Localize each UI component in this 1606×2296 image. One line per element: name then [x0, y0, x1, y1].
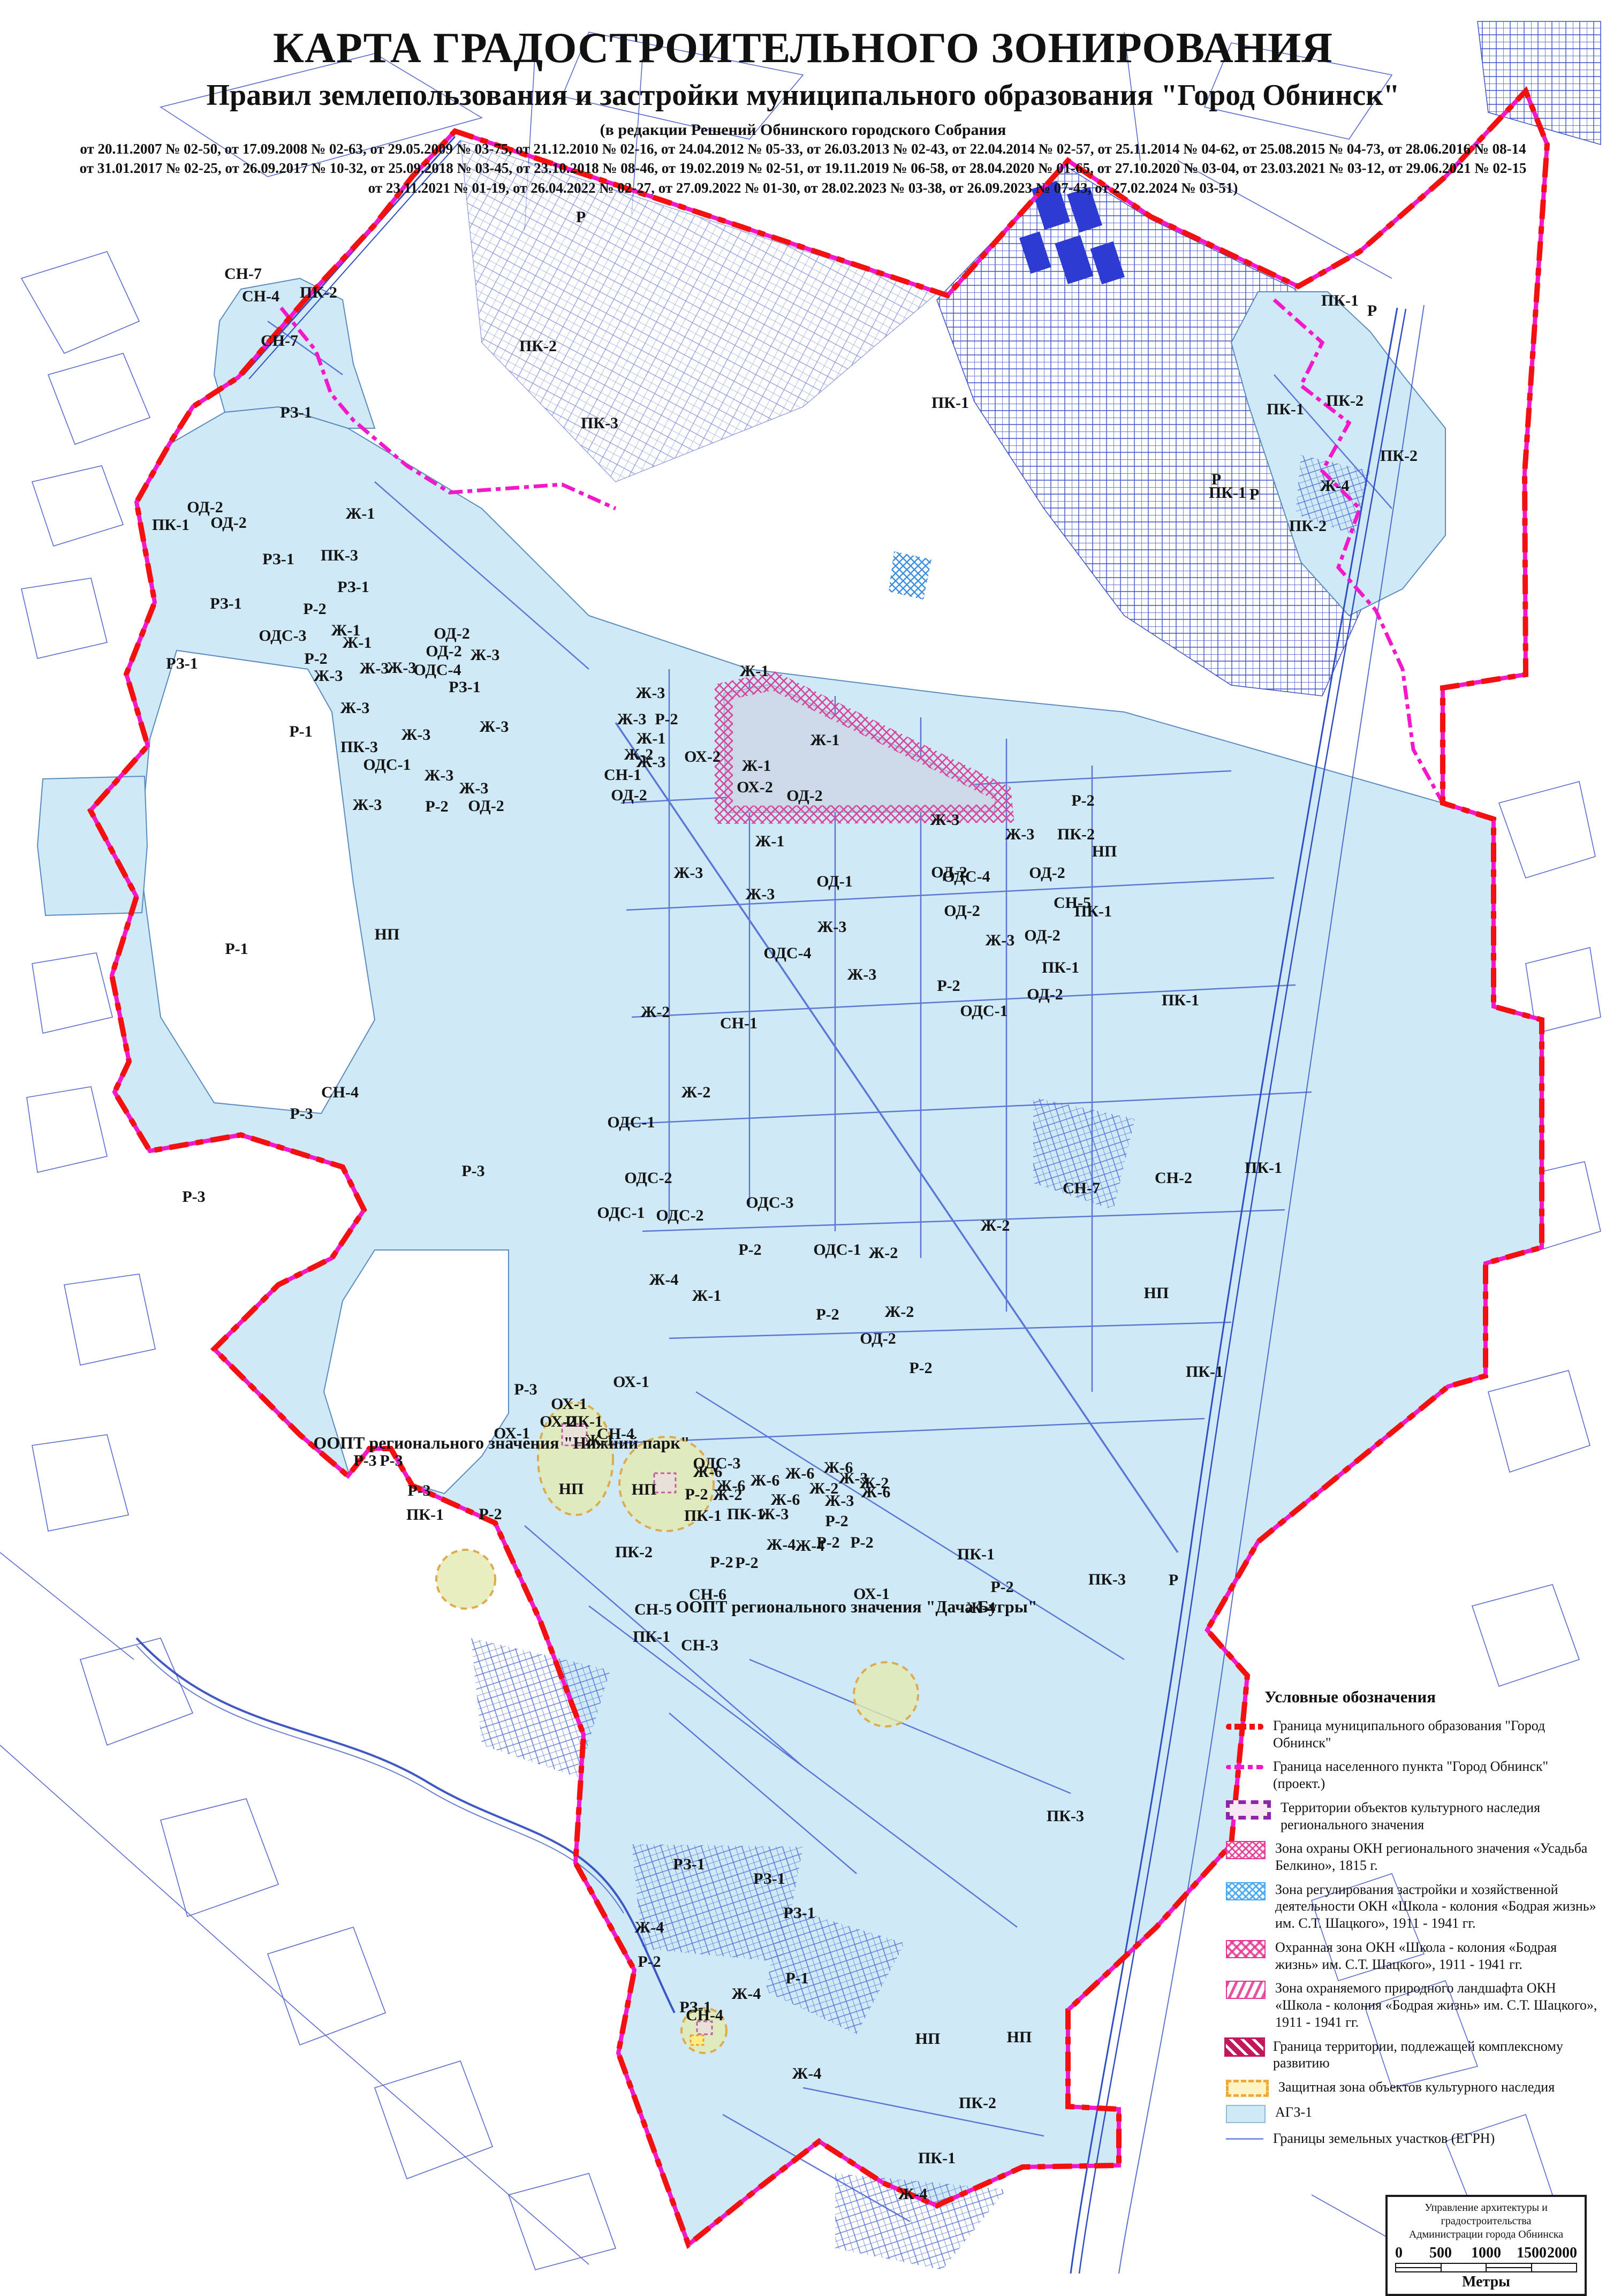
- zone-label: СН-7: [1063, 1179, 1100, 1197]
- zone-label: СН-4: [321, 1083, 359, 1101]
- zone-label: ПК-3: [581, 414, 618, 432]
- zone-label: Р: [576, 208, 586, 226]
- zone-label: Р-1: [225, 940, 248, 958]
- legend-item: Защитная зона объектов культурного насле…: [1226, 2079, 1601, 2097]
- zone-label: ОД-2: [468, 797, 504, 815]
- page-title: КАРТА ГРАДОСТРОИТЕЛЬНОГО ЗОНИРОВАНИЯ: [0, 26, 1606, 71]
- zone-label: ОХ-1: [551, 1395, 587, 1413]
- zone-label: Ж-3: [360, 660, 389, 677]
- zone-label: Ж-4: [796, 1537, 825, 1555]
- zone-label: ПК-2: [1057, 825, 1095, 843]
- zone-label: ОД-2: [860, 1330, 896, 1347]
- zone-label: ПК-1: [1267, 400, 1304, 418]
- zone-label: Ж-3: [617, 710, 647, 728]
- zone-label: НП: [632, 1481, 657, 1498]
- zone-label: ПК-2: [300, 284, 337, 301]
- zone-label: Ж-4: [767, 1536, 796, 1554]
- legend-item: Зона охраны ОКН регионального значения «…: [1226, 1840, 1601, 1874]
- heritage-swatch: [1226, 1800, 1271, 1820]
- scale-segment: [1487, 2264, 1532, 2271]
- zone-label: Р-2: [655, 710, 678, 728]
- zone-label: ОДС-3: [746, 1194, 793, 1211]
- zone-label: ПК-1: [1245, 1159, 1282, 1177]
- zone-label: РЗ-1: [449, 678, 481, 696]
- zone-label: СН-7: [224, 265, 262, 283]
- zone-label: ПК-3: [321, 547, 358, 564]
- zone-label: Ж-1: [343, 634, 372, 651]
- zone-label: Р-1: [785, 1969, 808, 1987]
- zone-label: Ж-1: [742, 757, 771, 775]
- zone-label: СН-2: [1155, 1169, 1192, 1187]
- zone-label: Ж-3: [847, 966, 877, 983]
- scale-box: Управление архитектуры и градостроительс…: [1385, 2195, 1587, 2296]
- zone-label: Р-3: [380, 1452, 403, 1469]
- scale-units: Метры: [1393, 2274, 1579, 2291]
- zone-label: ОД-2: [1024, 927, 1060, 944]
- landscape-swatch: [1226, 1981, 1266, 1999]
- zone-label: ОД-2: [944, 902, 980, 920]
- zone-label: Ж-3: [636, 684, 665, 702]
- zone-label: НП: [559, 1480, 584, 1498]
- zone-label: Ж-3: [930, 811, 960, 829]
- zone-label: Р-3: [407, 1482, 430, 1499]
- zone-label: ОД-2: [1029, 864, 1065, 882]
- zone-label: РЗ-1: [673, 1855, 705, 1873]
- legend-item-label: АГЗ-1: [1275, 2104, 1312, 2121]
- scale-segment: [1442, 2264, 1487, 2271]
- zone-label: ПК-1: [1074, 903, 1112, 920]
- legend-item-label: Граница территории, подлежащей комплексн…: [1273, 2038, 1601, 2072]
- legend: Условные обозначения Граница муниципальн…: [1226, 1687, 1601, 2154]
- zone-label: Р: [1169, 1571, 1178, 1589]
- zone-label: ООПТ регионального значения "Дача Бугры": [676, 1597, 1037, 1616]
- zone-label: Р-2: [937, 977, 960, 995]
- title-block: КАРТА ГРАДОСТРОИТЕЛЬНОГО ЗОНИРОВАНИЯ Пра…: [0, 26, 1606, 198]
- zone-label: Ж-3: [986, 931, 1015, 949]
- zone-label: РЗ-1: [166, 655, 198, 672]
- legend-rows: Граница муниципального образования "Горо…: [1226, 1717, 1601, 2147]
- scale-ticks: 0500100015002000: [1395, 2245, 1577, 2263]
- zone-label: Ж-1: [346, 505, 375, 522]
- zone-label: Р-2: [1071, 792, 1094, 809]
- scale-tick: 1500: [1517, 2245, 1547, 2262]
- zone-label: ПК-1: [957, 1545, 995, 1563]
- zone-label: ОДС-1: [960, 1002, 1007, 1020]
- zone-label: ОДС-4: [413, 661, 461, 679]
- zone-label: ОД-2: [1027, 986, 1063, 1003]
- page-subtitle: Правил землепользования и застройки муни…: [0, 78, 1606, 112]
- zone-label: СН-1: [720, 1014, 757, 1032]
- zone-label: Р-3: [461, 1162, 484, 1180]
- zone-label: Ж-2: [981, 1217, 1010, 1234]
- zone-label: Ж-4: [649, 1271, 679, 1289]
- zone-label: Ж-1: [692, 1287, 722, 1305]
- edition-line-3: от 23.11.2021 № 01-19, от 26.04.2022 № 0…: [0, 178, 1606, 198]
- zone-label: ПК-1: [1186, 1363, 1223, 1381]
- zone-label: Р: [1367, 302, 1377, 320]
- zone-label: Ж-6: [861, 1483, 891, 1501]
- zone-label: НП: [375, 926, 400, 943]
- zone-label: ПК-1: [1209, 484, 1246, 502]
- zone-label: Р-2: [638, 1953, 661, 1971]
- scale-bar: [1395, 2263, 1577, 2272]
- zone-label: СН-5: [634, 1601, 672, 1618]
- zone-label: РЗ-1: [337, 578, 369, 596]
- legend-item: Охранная зона ОКН «Школа - колония «Бодр…: [1226, 1939, 1601, 1973]
- zone-label: ОДС-4: [942, 868, 990, 885]
- legend-item: Границы земельных участков (ЕГРН): [1226, 2130, 1601, 2147]
- complex-dev-swatch: [1226, 2039, 1263, 2055]
- zone-label: Р-2: [303, 600, 326, 618]
- zone-label: ПК-2: [615, 1543, 653, 1561]
- zone-label: Ж-4: [898, 2185, 928, 2203]
- zone-label: Ж-1: [637, 730, 666, 747]
- zone-label: Ж-2: [713, 1486, 743, 1504]
- legend-item: Граница территории, подлежащей комплексн…: [1226, 2038, 1601, 2072]
- zoning-map-page: { "header": { "title": "КАРТА ГРАДОСТРОИ…: [0, 0, 1606, 2274]
- zone-label: НП: [1092, 843, 1117, 860]
- zone-label: ПК-2: [1289, 517, 1327, 535]
- zone-label: ОДС-3: [259, 627, 306, 645]
- reg-blue-swatch: [1226, 1882, 1266, 1900]
- zone-label: НП: [1144, 1284, 1169, 1302]
- legend-item: Зона регулирования застройки и хозяйстве…: [1226, 1881, 1601, 1932]
- zone-label: РЗ-1: [262, 550, 294, 568]
- zone-label: Ж-1: [755, 832, 785, 850]
- zone-label: Р-3: [514, 1381, 537, 1398]
- zone-label: Ж-1: [740, 662, 769, 680]
- zone-label: Ж-3: [401, 726, 431, 744]
- zone-label: ПК-3: [340, 738, 378, 756]
- legend-item: Граница населенного пункта "Город Обнинс…: [1226, 1758, 1601, 1792]
- zone-label: ПК-1: [1162, 991, 1199, 1009]
- zone-label: Р-2: [816, 1306, 839, 1323]
- zone-label: Ж-3: [314, 667, 343, 685]
- legend-item-label: Зона охраняемого природного ландшафта ОК…: [1275, 1980, 1601, 2030]
- zone-label: Ж-2: [869, 1244, 898, 1262]
- zone-label: ОД-2: [210, 514, 246, 532]
- zone-label: ПК-1: [684, 1507, 722, 1525]
- zone-label: ПК-1: [727, 1505, 764, 1523]
- zone-label: НП: [915, 2030, 941, 2048]
- edition-line-1: от 20.11.2007 № 02-50, от 17.09.2008 № 0…: [0, 139, 1606, 158]
- zone-label: Р-2: [909, 1359, 932, 1377]
- scale-tick: 2000: [1547, 2245, 1577, 2262]
- zone-label: ПК-3: [1088, 1571, 1126, 1588]
- zone-label: ОДС-4: [763, 944, 811, 962]
- zone-label: Ж-3: [1005, 825, 1035, 843]
- agz-swatch: [1226, 2105, 1266, 2123]
- zone-label: ПК-1: [633, 1628, 670, 1646]
- legend-title: Условные обозначения: [1264, 1687, 1601, 1707]
- zone-label: Р-2: [735, 1554, 758, 1572]
- zone-label: Ж-3: [459, 779, 489, 797]
- scale-tick: 1000: [1471, 2245, 1501, 2262]
- zone-label: ПК-3: [1047, 1807, 1084, 1825]
- zone-label: ПК-1: [1042, 959, 1079, 976]
- zone-label: Ж-3: [825, 1492, 854, 1510]
- legend-item: Территории объектов культурного наследия…: [1226, 1799, 1601, 1833]
- zone-label: Ж-6: [751, 1472, 780, 1489]
- legend-item-label: Защитная зона объектов культурного насле…: [1278, 2079, 1555, 2096]
- zone-label: Ж-3: [471, 646, 500, 664]
- legend-item-label: Зона охраны ОКН регионального значения «…: [1275, 1840, 1601, 1874]
- zone-label: Ж-3: [353, 796, 382, 814]
- zone-label: Ж-3: [425, 767, 454, 784]
- zone-label: ПК-1: [1321, 292, 1359, 309]
- zone-label: Ж-3: [480, 718, 509, 736]
- legend-item: Граница муниципального образования "Горо…: [1226, 1717, 1601, 1751]
- zone-label: РЗ-1: [280, 404, 312, 421]
- zone-label: ПК-2: [519, 337, 557, 355]
- protect-yellow-zone: [691, 2035, 703, 2045]
- zone-label: Р-2: [990, 1578, 1013, 1596]
- legend-item: Зона охраняемого природного ландшафта ОК…: [1226, 1980, 1601, 2030]
- zone-label: ПК-1: [406, 1506, 444, 1524]
- zone-label: Ж-3: [674, 864, 703, 882]
- zone-label: Ж-3: [340, 699, 370, 717]
- zone-label: РЗ-1: [753, 1870, 785, 1888]
- org-line-1: Управление архитектуры и градостроительс…: [1393, 2201, 1579, 2228]
- zone-label: РЗ-1: [783, 1904, 815, 1922]
- zone-label: Р-2: [738, 1241, 761, 1259]
- zone-label: Р-2: [479, 1505, 502, 1523]
- zone-label: ООПТ регионального значения "Нижний парк…: [313, 1433, 690, 1452]
- zone-label: Р: [1249, 486, 1259, 503]
- zone-label: СН-3: [681, 1636, 718, 1654]
- zone-label: СН-4: [242, 287, 279, 305]
- edition-note: (в редакции Решений Обнинского городског…: [0, 121, 1606, 139]
- zone-label: ПК-2: [1326, 392, 1363, 410]
- scale-segment: [1396, 2264, 1442, 2271]
- legend-item: АГЗ-1: [1226, 2104, 1601, 2123]
- zone-label: ОДС-1: [607, 1113, 655, 1131]
- zone-label: Р-2: [710, 1554, 733, 1571]
- zone-label: Ж-4: [792, 2065, 822, 2082]
- zone-label: ОДС-1: [813, 1241, 861, 1259]
- zone-label: Ж-3: [746, 885, 775, 903]
- zone-label: Ж-4: [635, 1919, 664, 1936]
- zone-label: Ж-1: [810, 731, 840, 749]
- protect-swatch: [1226, 2080, 1269, 2097]
- zone-label: ПК-2: [1380, 447, 1418, 465]
- zone-label: ОХ-1: [613, 1373, 649, 1391]
- zone-label: СН-7: [261, 332, 298, 350]
- edition-line-2: от 31.01.2017 № 02-25, от 26.09.2017 № 1…: [0, 158, 1606, 178]
- legend-item-label: Охранная зона ОКН «Школа - колония «Бодр…: [1275, 1939, 1601, 1973]
- scale-segment: [1532, 2264, 1577, 2271]
- zone-label: Р-2: [685, 1486, 708, 1503]
- zone-label: Р-3: [290, 1105, 313, 1123]
- zone-label: Р-3: [182, 1188, 205, 1206]
- zone-label: Р-2: [304, 650, 327, 668]
- org-line-2: Администрации города Обнинска: [1393, 2228, 1579, 2241]
- zone-label: ОДС-1: [597, 1204, 645, 1222]
- legend-item-label: Территории объектов культурного наследия…: [1281, 1799, 1601, 1833]
- legend-item-label: Границы земельных участков (ЕГРН): [1273, 2130, 1495, 2147]
- zone-label: Ж-3: [387, 659, 416, 677]
- legend-item-label: Зона регулирования застройки и хозяйстве…: [1275, 1881, 1601, 1932]
- zone-label: ОД-2: [434, 625, 469, 642]
- zone-label: Р-3: [353, 1452, 376, 1469]
- zone-label: РЗ-1: [210, 595, 242, 612]
- zone-label: ОД-2: [786, 787, 822, 805]
- scale-tick: 500: [1429, 2245, 1452, 2262]
- zone-label: Ж-3: [817, 918, 847, 936]
- zone-label: ОХ-2: [684, 748, 721, 766]
- zone-label: Ж-4: [1320, 477, 1350, 495]
- zone-label: Ж-2: [641, 1003, 670, 1021]
- zone-label: НП: [1007, 2028, 1032, 2046]
- zone-label: ОДС-2: [624, 1169, 672, 1187]
- zone-label: ОД-2: [611, 786, 647, 804]
- scale-tick: 0: [1395, 2245, 1403, 2262]
- zone-label: Ж-4: [732, 1985, 761, 2003]
- legend-item-label: Граница населенного пункта "Город Обнинс…: [1273, 1758, 1601, 1792]
- zone-label: Ж-2: [885, 1303, 914, 1321]
- zone-label: ПК-1: [918, 2149, 956, 2167]
- zone-label: ОДС-2: [656, 1207, 703, 1224]
- zone-label: ОД-1: [816, 873, 852, 890]
- zone-label: Р-2: [825, 1512, 848, 1530]
- zone-label: ПК-1: [931, 394, 969, 412]
- zone-label: СН-1: [604, 766, 641, 784]
- zone-label: ПК-1: [152, 516, 190, 534]
- zone-label: ПК-2: [959, 2094, 996, 2112]
- belkino-swatch: [1226, 1841, 1266, 1859]
- zone-label: СН-4: [686, 2006, 723, 2024]
- zone-label: Ж-2: [681, 1083, 711, 1101]
- legend-item-label: Граница муниципального образования "Горо…: [1273, 1717, 1601, 1751]
- zone-label: ОДС-1: [363, 756, 411, 774]
- zone-label: Р-2: [425, 798, 448, 815]
- okn-guard-swatch: [1226, 1940, 1266, 1958]
- zone-label: ОД-2: [426, 642, 461, 660]
- zone-label: Р-2: [850, 1534, 873, 1551]
- zone-label: ОХ-2: [737, 778, 773, 796]
- zone-label: Ж-3: [760, 1505, 789, 1523]
- zone-label: Р-1: [289, 723, 312, 740]
